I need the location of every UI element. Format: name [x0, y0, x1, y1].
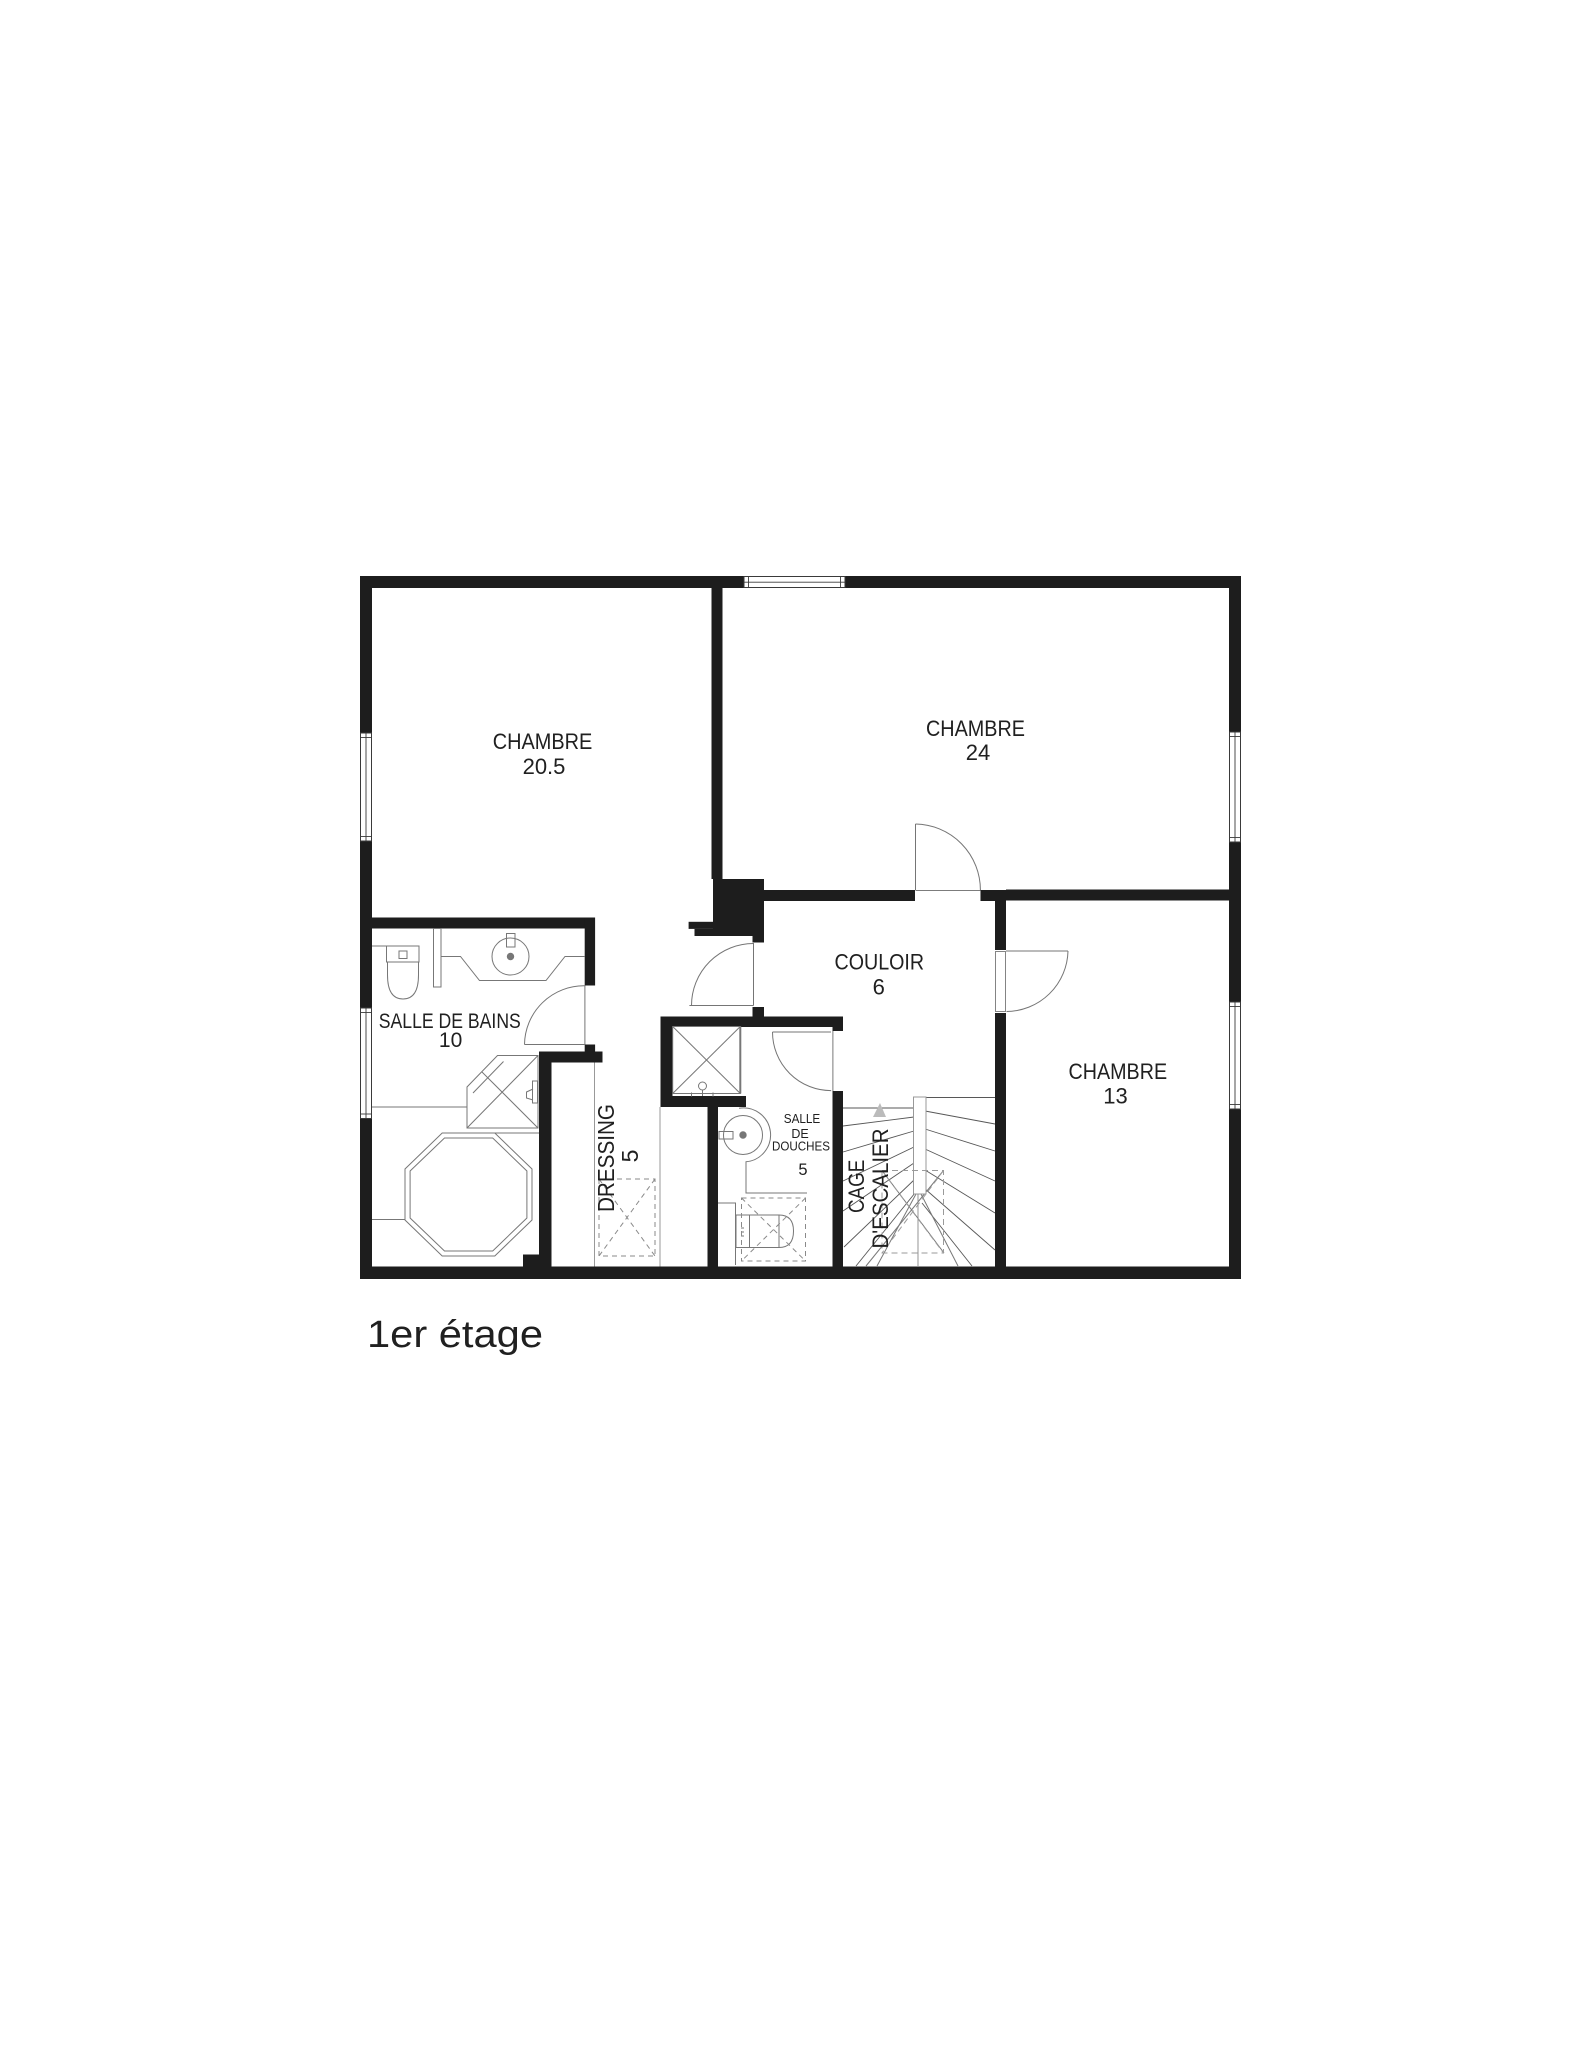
svg-text:DRESSING: DRESSING [593, 1104, 619, 1212]
svg-text:CHAMBRE: CHAMBRE [1069, 1059, 1168, 1084]
svg-text:SALLE: SALLE [784, 1112, 821, 1126]
svg-text:D'ESCALIER: D'ESCALIER [868, 1129, 893, 1249]
svg-text:13: 13 [1103, 1083, 1127, 1108]
svg-text:CAGE: CAGE [844, 1160, 869, 1213]
svg-text:10: 10 [439, 1029, 462, 1052]
svg-text:5: 5 [798, 1161, 807, 1179]
svg-text:24: 24 [966, 740, 990, 765]
svg-text:5: 5 [617, 1150, 643, 1163]
svg-text:20.5: 20.5 [523, 754, 566, 779]
svg-text:DOUCHES: DOUCHES [772, 1140, 830, 1154]
svg-text:COULOIR: COULOIR [835, 950, 925, 975]
svg-text:6: 6 [873, 974, 885, 999]
svg-text:CHAMBRE: CHAMBRE [926, 716, 1025, 741]
svg-text:CHAMBRE: CHAMBRE [493, 729, 593, 754]
svg-text:1er étage: 1er étage [367, 1314, 543, 1356]
